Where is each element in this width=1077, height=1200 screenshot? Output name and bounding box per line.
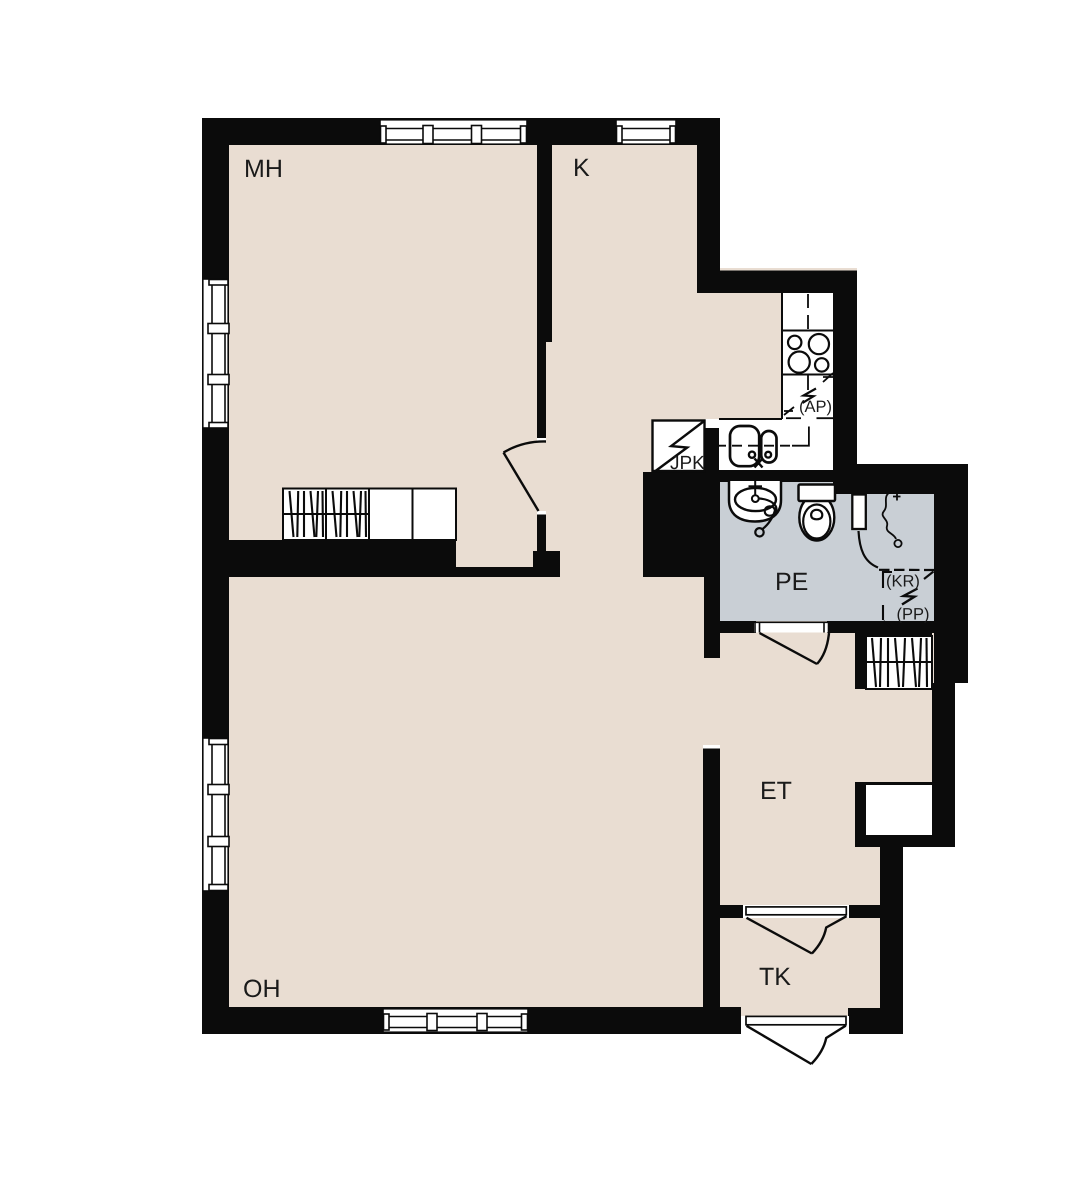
svg-text:(PP): (PP) [897, 606, 930, 624]
svg-text:(KR): (KR) [886, 573, 920, 591]
svg-text:TK: TK [759, 963, 791, 991]
svg-text:JPK: JPK [670, 453, 705, 474]
svg-text:MH: MH [244, 155, 283, 183]
svg-text:(AP): (AP) [799, 398, 832, 416]
svg-text:ET: ET [760, 777, 792, 805]
svg-text:K: K [573, 154, 590, 182]
svg-text:PE: PE [775, 568, 808, 596]
svg-text:OH: OH [243, 975, 281, 1003]
